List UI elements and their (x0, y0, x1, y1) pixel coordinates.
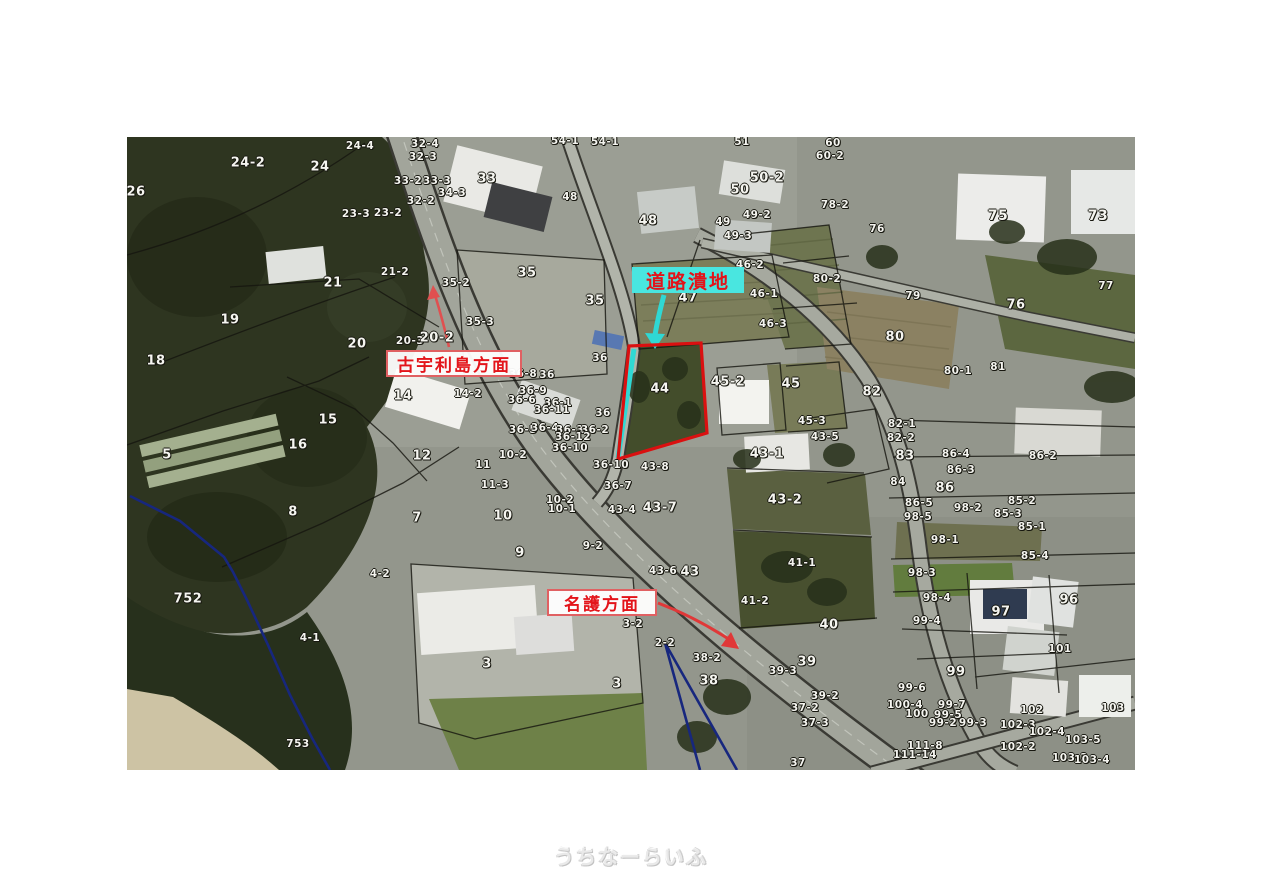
aerial-map: 2624-22424-432-432-333-233-33334-332-223… (127, 137, 1135, 770)
parcel-label-33: 33 (477, 172, 496, 187)
parcel-label-38-2: 38-2 (693, 652, 721, 664)
nago-direction-label: 名護方面 (547, 589, 657, 616)
parcel-label-7: 7 (412, 511, 422, 526)
parcel-label-44: 44 (650, 382, 669, 397)
parcel-label-40: 40 (819, 618, 838, 633)
parcel-label-46-1: 46-1 (750, 288, 778, 300)
parcel-label-99-2: 99-2 (929, 717, 957, 729)
parcel-label-752: 752 (174, 592, 203, 607)
parcel-label-10-1: 10-1 (548, 503, 576, 515)
parcel-label-43-4: 43-4 (608, 504, 636, 516)
parcel-label-49-2: 49-2 (743, 209, 771, 221)
parcel-label-86: 86 (935, 481, 954, 496)
parcel-label-98-4: 98-4 (923, 592, 951, 604)
parcel-label-9-2: 9-2 (583, 540, 603, 552)
parcel-label-54-1: 54-1 (551, 137, 579, 147)
parcel-label-32-3: 32-3 (409, 151, 437, 163)
parcel-label-23-2: 23-2 (374, 207, 402, 219)
parcel-label-32-4: 32-4 (411, 138, 439, 150)
parcel-label-33-3: 33-3 (423, 175, 451, 187)
parcel-label-80: 80 (885, 330, 904, 345)
parcel-label-43-2: 43-2 (768, 493, 803, 508)
parcel-label-102-4: 102-4 (1029, 726, 1065, 738)
parcel-label-99-4: 99-4 (913, 615, 941, 627)
parcel-label-43-6: 43-6 (649, 565, 677, 577)
parcel-label-60-2: 60-2 (816, 150, 844, 162)
parcel-label-20-2: 20-2 (420, 331, 455, 346)
parcel-label-36: 36 (595, 407, 611, 419)
parcel-label-100: 100 (905, 708, 928, 720)
parcel-label-103: 103 (1101, 702, 1124, 714)
parcel-label-21-2: 21-2 (381, 266, 409, 278)
parcel-label-97: 97 (991, 605, 1010, 620)
parcel-label-36: 36 (539, 369, 555, 381)
parcel-label-11-3: 11-3 (481, 479, 509, 491)
parcel-label-45-3: 45-3 (798, 415, 826, 427)
parcel-label-98-5: 98-5 (904, 511, 932, 523)
parcel-label-43-8: 43-8 (641, 461, 669, 473)
parcel-label-16: 16 (288, 438, 307, 453)
parcel-label-86-5: 86-5 (905, 497, 933, 509)
parcel-label-46-3: 46-3 (759, 318, 787, 330)
road-ruin-label: 道路潰地 (632, 267, 744, 293)
parcel-label-50: 50 (730, 183, 749, 198)
parcel-label-3: 3 (482, 657, 492, 672)
parcel-label-39: 39 (797, 655, 816, 670)
parcel-label-4-1: 4-1 (300, 632, 320, 644)
parcel-label-2-2: 2-2 (655, 637, 675, 649)
parcel-label-98-2: 98-2 (954, 502, 982, 514)
kouri-direction-label-text: 古宇利島方面 (397, 351, 511, 376)
parcel-label-753: 753 (286, 738, 309, 750)
parcel-label-43-1: 43-1 (750, 447, 785, 462)
parcel-label-82: 82 (862, 385, 881, 400)
parcel-label-99: 99 (946, 665, 965, 680)
parcel-label-34-3: 34-3 (438, 187, 466, 199)
parcel-label-38: 38 (699, 674, 718, 689)
parcel-label-39-2: 39-2 (811, 690, 839, 702)
parcel-label-85-2: 85-2 (1008, 495, 1036, 507)
parcel-label-86-3: 86-3 (947, 464, 975, 476)
parcel-label-50-2: 50-2 (750, 171, 785, 186)
parcel-label-36-7: 36-7 (604, 480, 632, 492)
parcel-label-99-6: 99-6 (898, 682, 926, 694)
parcel-label-48: 48 (562, 191, 578, 203)
parcel-label-43-5: 43-5 (811, 431, 839, 443)
parcel-number-layer: 2624-22424-432-432-333-233-33334-332-223… (127, 137, 1135, 770)
parcel-label-18: 18 (146, 354, 165, 369)
parcel-label-5: 5 (162, 448, 172, 463)
site-watermark: うちなーらいふ (554, 841, 708, 870)
parcel-label-37-2: 37-2 (791, 702, 819, 714)
parcel-label-14-2: 14-2 (454, 388, 482, 400)
parcel-label-45-2: 45-2 (711, 375, 746, 390)
road-ruin-label-text: 道路潰地 (646, 267, 730, 294)
parcel-label-98-3: 98-3 (908, 567, 936, 579)
parcel-label-14: 14 (393, 389, 412, 404)
parcel-label-3-2: 3-2 (623, 618, 643, 630)
parcel-label-80-2: 80-2 (813, 273, 841, 285)
parcel-label-101: 101 (1048, 643, 1071, 655)
parcel-label-33-2: 33-2 (394, 175, 422, 187)
parcel-label-24: 24 (310, 160, 329, 175)
parcel-label-36-10: 36-10 (593, 459, 629, 471)
parcel-label-84: 84 (890, 476, 906, 488)
parcel-label-77: 77 (1098, 280, 1114, 292)
parcel-label-79: 79 (905, 290, 921, 302)
parcel-label-45: 45 (781, 377, 800, 392)
parcel-label-82-1: 82-1 (888, 418, 916, 430)
parcel-label-82-2: 82-2 (887, 432, 915, 444)
parcel-label-85-1: 85-1 (1018, 521, 1046, 533)
parcel-label-39-3: 39-3 (769, 665, 797, 677)
parcel-label-76: 76 (869, 223, 885, 235)
parcel-label-36: 36 (592, 352, 608, 364)
nago-direction-label-text: 名護方面 (564, 590, 640, 615)
parcel-label-8: 8 (288, 505, 298, 520)
parcel-label-81: 81 (990, 361, 1006, 373)
parcel-label-41-2: 41-2 (741, 595, 769, 607)
parcel-label-10: 10 (493, 509, 512, 524)
parcel-label-85-4: 85-4 (1021, 550, 1049, 562)
parcel-label-35: 35 (517, 266, 536, 281)
parcel-label-35: 35 (585, 294, 604, 309)
kouri-direction-label: 古宇利島方面 (386, 350, 522, 377)
parcel-label-37: 37 (790, 757, 806, 769)
parcel-label-23-3: 23-3 (342, 208, 370, 220)
parcel-label-102-2: 102-2 (1000, 741, 1036, 753)
parcel-label-32-2: 32-2 (407, 195, 435, 207)
parcel-label-24-4: 24-4 (346, 140, 374, 152)
parcel-label-43: 43 (680, 565, 699, 580)
parcel-label-21: 21 (323, 276, 342, 291)
parcel-label-36-11: 36-11 (534, 404, 570, 416)
parcel-label-3: 3 (612, 677, 622, 692)
parcel-label-35-3: 35-3 (466, 316, 494, 328)
parcel-label-98-1: 98-1 (931, 534, 959, 546)
parcel-label-75: 75 (988, 208, 1008, 224)
parcel-label-48: 48 (638, 214, 657, 229)
parcel-label-51: 51 (734, 137, 750, 148)
parcel-label-9: 9 (515, 546, 525, 561)
parcel-label-49-3: 49-3 (724, 230, 752, 242)
parcel-label-102: 102 (1020, 704, 1043, 716)
parcel-label-86-2: 86-2 (1029, 450, 1057, 462)
parcel-label-73: 73 (1088, 208, 1108, 224)
parcel-label-15: 15 (318, 413, 337, 428)
parcel-label-111-14: 111-14 (893, 749, 937, 761)
parcel-label-49: 49 (715, 216, 731, 228)
parcel-label-4-2: 4-2 (370, 568, 390, 580)
parcel-label-35-2: 35-2 (442, 277, 470, 289)
parcel-label-41-1: 41-1 (788, 557, 816, 569)
parcel-label-54-1: 54-1 (591, 137, 619, 148)
parcel-label-11: 11 (475, 459, 491, 471)
parcel-label-85-3: 85-3 (994, 508, 1022, 520)
parcel-label-20: 20 (347, 337, 366, 352)
parcel-label-80-1: 80-1 (944, 365, 972, 377)
page: 2624-22424-432-432-333-233-33334-332-223… (0, 0, 1262, 892)
parcel-label-103-5: 103-5 (1065, 734, 1101, 746)
parcel-label-86-4: 86-4 (942, 448, 970, 460)
parcel-label-96: 96 (1059, 593, 1078, 608)
parcel-label-83: 83 (895, 449, 914, 464)
parcel-label-36-10: 36-10 (552, 442, 588, 454)
parcel-label-60: 60 (825, 137, 841, 149)
parcel-label-24-2: 24-2 (231, 156, 266, 171)
parcel-label-37-3: 37-3 (801, 717, 829, 729)
parcel-label-78-2: 78-2 (821, 199, 849, 211)
parcel-label-76: 76 (1006, 298, 1025, 313)
parcel-label-10-2: 10-2 (499, 449, 527, 461)
parcel-label-103-4: 103-4 (1074, 754, 1110, 766)
parcel-label-26: 26 (127, 185, 146, 200)
parcel-label-12: 12 (412, 449, 431, 464)
parcel-label-99-3: 99-3 (959, 717, 987, 729)
parcel-label-43-7: 43-7 (643, 501, 678, 516)
parcel-label-36-6: 36-6 (508, 394, 536, 406)
parcel-label-19: 19 (220, 313, 239, 328)
